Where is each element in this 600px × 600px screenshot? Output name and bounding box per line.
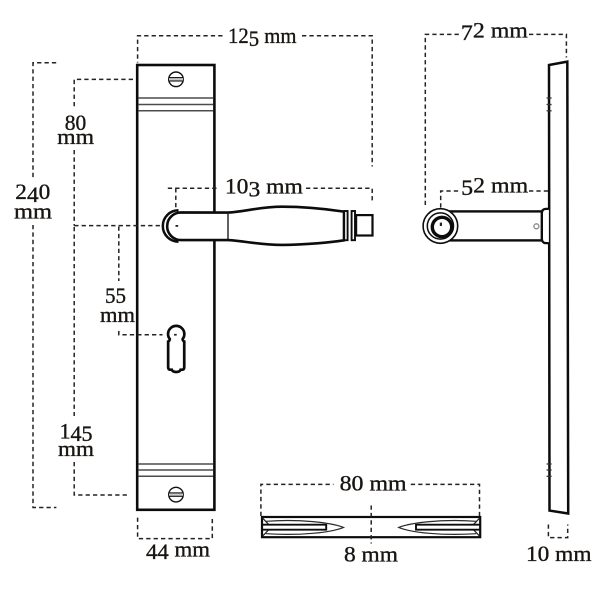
- svg-text:8 mm: 8 mm: [344, 542, 398, 567]
- svg-text:125 mm: 125 mm: [228, 23, 297, 51]
- svg-text:mm: mm: [100, 302, 135, 327]
- svg-text:mm: mm: [57, 124, 94, 149]
- svg-text:72 mm: 72 mm: [461, 18, 528, 46]
- svg-text:10 mm: 10 mm: [526, 541, 592, 566]
- svg-text:mm: mm: [58, 436, 94, 461]
- svg-text:44 mm: 44 mm: [146, 537, 210, 565]
- svg-text:mm: mm: [14, 199, 52, 224]
- svg-text:52 mm: 52 mm: [461, 173, 528, 201]
- svg-text:80 mm: 80 mm: [340, 471, 407, 496]
- svg-text:103 mm: 103 mm: [225, 174, 304, 202]
